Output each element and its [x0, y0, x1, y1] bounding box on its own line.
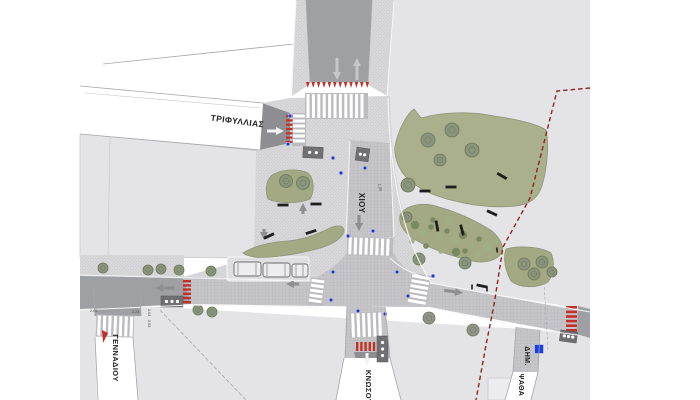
- traffic-sign-icon: [339, 171, 343, 175]
- shrub-icon: [483, 243, 491, 251]
- tree-icon: [207, 307, 217, 317]
- site-plan-image: ΤΡΙΦΥΛΛΙΑΣΧΙΟΥΓΕΝΝΑΔΙΟΥΚΝΩΣΟΥΔΗΜ.ΨΑΘΑ 2.…: [0, 0, 700, 400]
- crosswalk: [292, 113, 306, 146]
- tree-icon: [98, 263, 108, 273]
- dimension-label: 2.02: [147, 309, 151, 316]
- shrub-icon: [445, 217, 453, 225]
- crosswalk: [350, 311, 383, 338]
- bench-icon: [278, 204, 289, 207]
- tree-icon: [434, 154, 446, 166]
- bollard-icon: [471, 285, 473, 290]
- traffic-sign-icon: [395, 270, 399, 274]
- tactile-ramp: [559, 330, 577, 343]
- tree-icon: [421, 133, 435, 147]
- tree-icon: [536, 256, 548, 268]
- crosswalk: [305, 93, 368, 119]
- traffic-sign-icon: [383, 312, 387, 316]
- traffic-sign-icon: [356, 309, 360, 313]
- tree-icon: [156, 264, 166, 274]
- tree-icon: [206, 266, 216, 276]
- tree-icon: [423, 312, 435, 324]
- shrub-icon: [428, 224, 434, 230]
- bollard-icon: [486, 287, 488, 292]
- block-left: [80, 133, 260, 258]
- tree-icon: [528, 268, 540, 280]
- tree-icon: [280, 175, 293, 188]
- crosswalk: [347, 236, 394, 257]
- traffic-sign-icon: [331, 156, 335, 160]
- tactile-ramp: [355, 147, 370, 162]
- street-label-gennadiou: ΓΕΝΝΑΔΙΟΥ: [111, 334, 120, 381]
- tree-icon: [547, 267, 557, 277]
- shrub-icon: [452, 248, 460, 256]
- shrub-icon: [462, 248, 468, 254]
- tree-icon: [465, 143, 479, 157]
- shrub-icon: [411, 221, 419, 229]
- tactile-ramp: [377, 336, 388, 362]
- tree-icon: [193, 305, 203, 315]
- shrub-icon: [475, 251, 481, 257]
- vehicle: [234, 262, 261, 276]
- traffic-sign-icon: [286, 142, 290, 146]
- street-label-chiou: ΧΙΟΥ: [357, 193, 366, 214]
- vehicle: [263, 263, 290, 277]
- bench-icon: [311, 203, 322, 206]
- tree-icon: [174, 265, 184, 275]
- traffic-sign-icon: [288, 114, 292, 118]
- traffic-sign-icon: [346, 234, 350, 238]
- site-plan-svg: ΤΡΙΦΥΛΛΙΑΣΧΙΟΥΓΕΝΝΑΔΙΟΥΚΝΩΣΟΥΔΗΜ.ΨΑΘΑ 2.…: [0, 0, 700, 400]
- north-road-asphalt: [306, 0, 372, 82]
- tree-icon: [467, 324, 479, 336]
- tactile-ramp: [303, 146, 324, 158]
- tree-icon: [143, 265, 153, 275]
- bench-icon: [420, 190, 431, 193]
- tree-icon: [401, 178, 415, 192]
- shrub-icon: [452, 238, 458, 244]
- dimension-label: 2.00: [90, 309, 97, 313]
- traffic-sign-icon: [331, 270, 335, 274]
- tree-icon: [297, 177, 310, 190]
- dimension-label: 2.23: [132, 310, 139, 314]
- dimension-label: 2.53: [147, 320, 151, 327]
- traffic-sign-icon: [431, 274, 435, 278]
- traffic-sign-icon: [406, 294, 410, 298]
- chiou-street-surface: [347, 140, 393, 237]
- street-label-psatha: ΨΑΘΑ: [517, 374, 524, 396]
- vehicle: [292, 264, 308, 277]
- vehicles-layer: [234, 262, 308, 277]
- traffic-sign-icon: [363, 166, 367, 170]
- shrub-icon: [438, 248, 444, 254]
- traffic-sign-icon: [329, 298, 333, 302]
- tree-icon: [445, 123, 459, 137]
- street-label-dim: ΔΗΜ.: [523, 346, 530, 365]
- shrub-icon: [476, 236, 482, 242]
- sidewalk-strip: [80, 255, 184, 278]
- traffic-sign-icon: [371, 229, 375, 233]
- shrub-icon: [423, 243, 429, 249]
- shrub-icon: [420, 230, 426, 236]
- street-label-knosou: ΚΝΩΣΟΥ: [364, 370, 373, 400]
- shrub-icon: [468, 242, 474, 248]
- tree-icon: [518, 258, 530, 270]
- bench-icon: [446, 186, 457, 189]
- shrub-icon: [435, 233, 443, 241]
- tree-icon: [459, 257, 471, 269]
- shrub-icon: [444, 228, 450, 234]
- tree-icon: [413, 253, 425, 265]
